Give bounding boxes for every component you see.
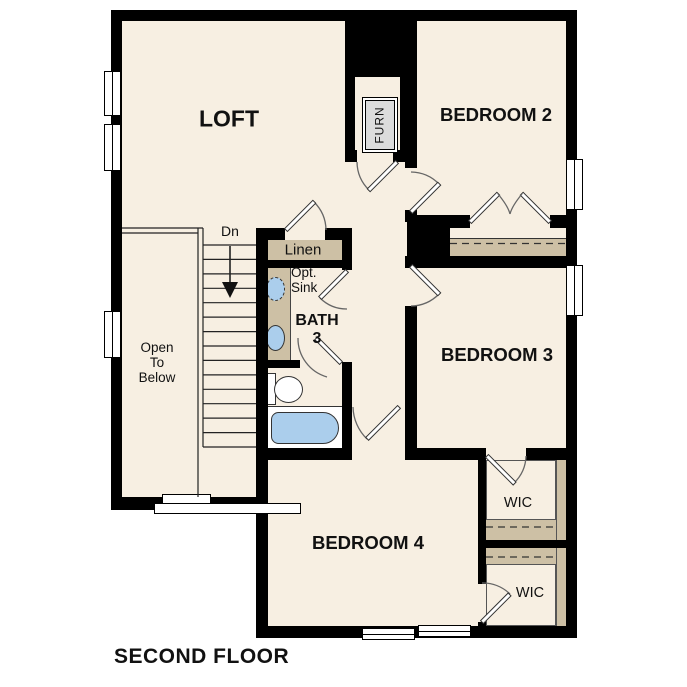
window-loft-2 <box>104 124 121 171</box>
toilet-bowl <box>274 376 303 403</box>
bedroom4-wall-left <box>256 460 268 638</box>
room-label-linen: Linen <box>285 242 322 259</box>
bathtub <box>271 412 339 444</box>
wall-top <box>111 10 577 21</box>
wic-lower-shelf <box>486 548 556 564</box>
bath-wall-right-upper <box>342 228 352 270</box>
bedroom4-wall-bottom <box>256 626 577 638</box>
window-bottom-left-b <box>154 503 301 514</box>
window-bedroom3 <box>566 265 583 316</box>
window-loft-1 <box>104 71 121 116</box>
bedroom3-wall-bottom-left <box>405 448 486 460</box>
bath-wall-bottom <box>256 448 352 460</box>
sink <box>266 325 285 351</box>
bedroom3-wall-bottom-right <box>526 448 577 460</box>
closet-front-right <box>550 215 567 228</box>
bedroom2-closet-shelf <box>450 238 566 257</box>
window-bedroom4-2 <box>418 625 471 637</box>
window-stairwell <box>104 311 121 358</box>
room-label-wic-upper: WIC <box>504 495 532 511</box>
room-label-bath-number: 3 <box>313 330 322 348</box>
wic-wall-left-lower-stub <box>478 622 486 630</box>
wic-upper-interior <box>486 460 556 520</box>
room-label-wic-lower: WIC <box>516 585 544 601</box>
window-bedroom4-1 <box>362 628 415 640</box>
sink-optional <box>266 277 285 301</box>
stairs-down-label: Dn <box>221 223 239 239</box>
hall-wall-right <box>405 306 417 460</box>
room-label-loft: LOFT <box>199 106 259 133</box>
page-title: SECOND FLOOR <box>114 645 289 669</box>
open-to-below-label: Open To Below <box>139 340 176 385</box>
room-label-bedroom3: BEDROOM 3 <box>441 344 553 366</box>
wic-wall-left-lower <box>478 548 486 584</box>
bedroom2-wall-left <box>405 21 417 168</box>
room-label-bath: BATH <box>295 312 338 330</box>
wic-wall-left-upper <box>478 460 486 540</box>
furnace-label: FURN <box>373 106 387 143</box>
wic-divider-wall <box>478 540 577 548</box>
window-bedroom2 <box>566 159 583 210</box>
optional-sink-label: Opt. Sink <box>291 265 317 295</box>
vanity-wall <box>256 360 300 368</box>
closet-front-left <box>450 215 470 228</box>
room-label-bedroom4: BEDROOM 4 <box>312 532 424 554</box>
chimney-chase <box>345 21 410 77</box>
furnace-unit: FURN <box>362 97 398 153</box>
room-label-bedroom2: BEDROOM 2 <box>440 104 552 126</box>
floor-plan: FURN <box>0 0 687 687</box>
furnace-wall-bottom-left <box>345 150 357 162</box>
bath-wall-right-lower <box>342 362 352 460</box>
wall-bedroom2-3 <box>405 256 577 268</box>
closet-chase <box>407 215 450 262</box>
linen-wall-top-left <box>268 228 285 240</box>
wic-upper-shelf <box>486 520 556 540</box>
